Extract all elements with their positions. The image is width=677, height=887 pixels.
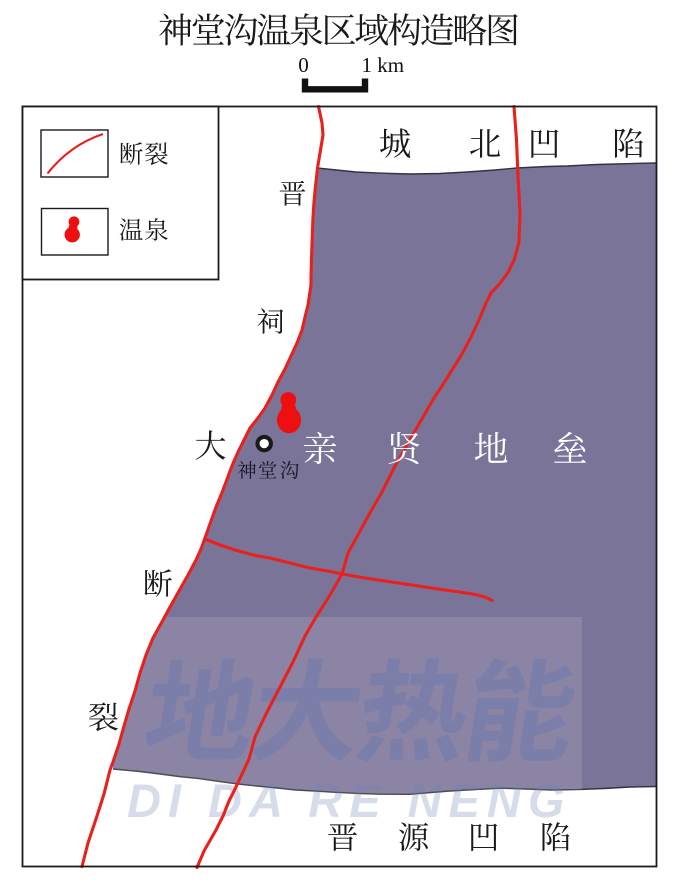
svg-text:DI DA RE NENG: DI DA RE NENG xyxy=(127,774,571,827)
svg-text:0: 0 xyxy=(298,53,309,77)
svg-text:1 km: 1 km xyxy=(362,53,405,77)
